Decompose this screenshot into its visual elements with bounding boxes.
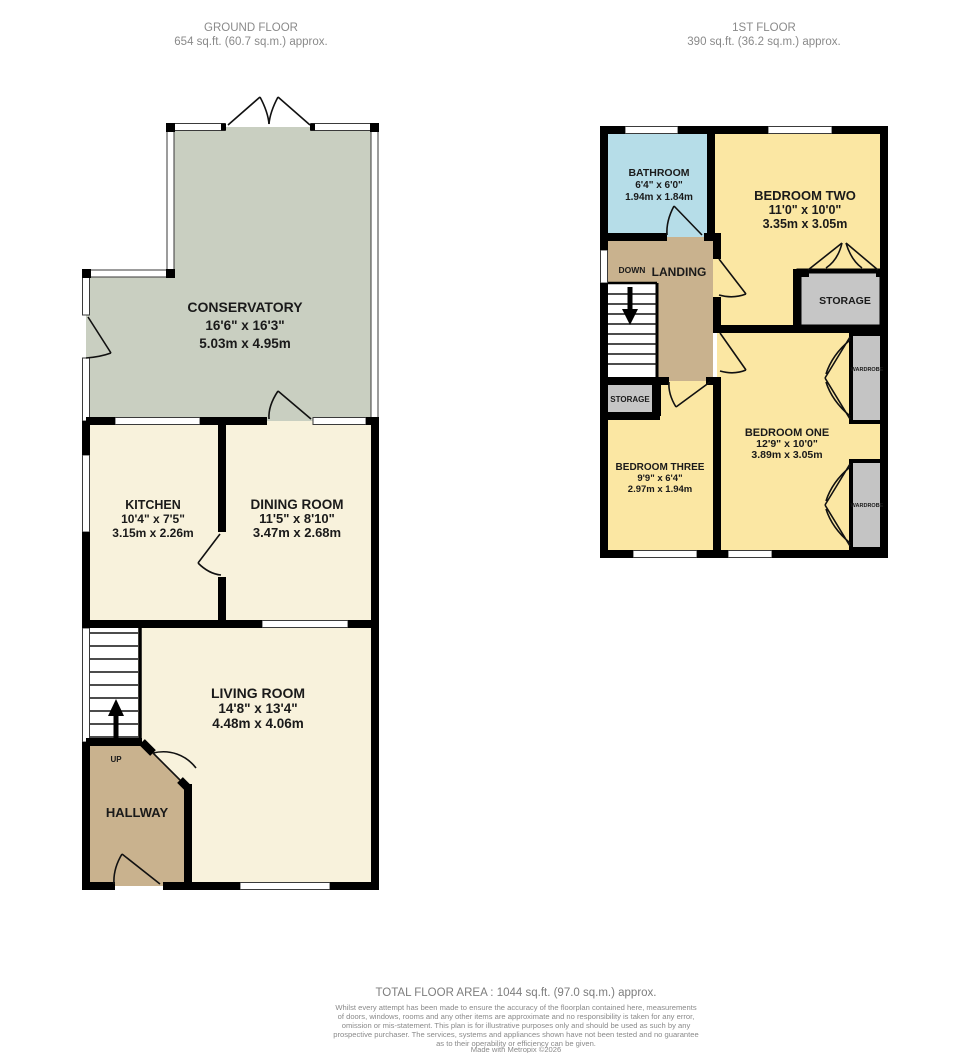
bedroom-two-imperial: 11'0" x 10'0" (769, 203, 842, 217)
wardrobe-bottom-label: WARDROBE (851, 503, 884, 509)
bedroom-one-metric: 3.89m x 3.05m (751, 449, 822, 461)
hallway-name: HALLWAY (106, 805, 169, 820)
wardrobe-top-label: WARDROBE (851, 367, 884, 373)
down-label: DOWN (619, 265, 646, 275)
first-floor-header: 1ST FLOOR 390 sq.ft. (36.2 sq.m.) approx… (687, 22, 840, 48)
total-floor-area: TOTAL FLOOR AREA : 1044 sq.ft. (97.0 sq.… (375, 987, 656, 999)
conservatory-metric: 5.03m x 4.95m (199, 336, 291, 351)
up-label: UP (110, 755, 122, 764)
bathroom-imperial: 6'4" x 6'0" (635, 180, 683, 191)
living-name: LIVING ROOM (211, 685, 305, 701)
bathroom-metric: 1.94m x 1.84m (625, 192, 693, 203)
storage-main-label: STORAGE (819, 295, 871, 307)
bedroom-two-name: BEDROOM TWO (754, 188, 856, 203)
dining-imperial: 11'5" x 8'10" (259, 511, 335, 526)
disclaimer-line: omission or mis-statement. This plan is … (342, 1021, 691, 1030)
disclaimer-line: of doors, windows, rooms and any other i… (338, 1012, 695, 1021)
bedroom-three-metric: 2.97m x 1.94m (628, 484, 692, 495)
landing-name: LANDING (652, 265, 707, 279)
first-floor-title: 1ST FLOOR (732, 22, 796, 34)
disclaimer-line: prospective purchaser. The services, sys… (333, 1030, 698, 1039)
living-imperial: 14'8" x 13'4" (218, 701, 297, 716)
footer: TOTAL FLOOR AREA : 1044 sq.ft. (97.0 sq.… (333, 987, 698, 1053)
bathroom-name: BATHROOM (628, 167, 689, 179)
wardrobe-top (851, 334, 882, 422)
first-floor-area: 390 sq.ft. (36.2 sq.m.) approx. (687, 36, 840, 48)
dining-name: DINING ROOM (251, 497, 344, 512)
dining-metric: 3.47m x 2.68m (253, 525, 341, 540)
conservatory-imperial: 16'6" x 16'3" (205, 318, 284, 333)
conservatory-name: CONSERVATORY (187, 299, 303, 315)
first-floor-plan: BATHROOM 6'4" x 6'0" 1.94m x 1.84m BEDRO… (600, 126, 888, 558)
kitchen-imperial: 10'4" x 7'5" (121, 512, 185, 526)
bedroom-two-metric: 3.35m x 3.05m (763, 217, 848, 231)
ground-floor-plan: CONSERVATORY 16'6" x 16'3" 5.03m x 4.95m… (82, 97, 379, 890)
bedroom-three-imperial: 9'9" x 6'4" (637, 473, 682, 484)
first-floor-stairs (604, 283, 657, 378)
storage-small-label: STORAGE (610, 395, 650, 404)
kitchen-name: KITCHEN (125, 498, 181, 512)
floorplan-canvas: GROUND FLOOR 654 sq.ft. (60.7 sq.m.) app… (0, 0, 980, 1053)
living-metric: 4.48m x 4.06m (212, 716, 304, 731)
kitchen-metric: 3.15m x 2.26m (112, 526, 193, 540)
ground-floor-title: GROUND FLOOR (204, 22, 298, 34)
ground-floor-header: GROUND FLOOR 654 sq.ft. (60.7 sq.m.) app… (174, 22, 327, 48)
credit-line: Made with Metropix ©2026 (471, 1045, 561, 1053)
ground-floor-area: 654 sq.ft. (60.7 sq.m.) approx. (174, 36, 327, 48)
ground-floor-stairs (88, 624, 140, 742)
floorplan-page: GROUND FLOOR 654 sq.ft. (60.7 sq.m.) app… (0, 0, 980, 1053)
disclaimer-line: Whilst every attempt has been made to en… (335, 1003, 697, 1012)
bedroom-three-name: BEDROOM THREE (616, 462, 705, 473)
